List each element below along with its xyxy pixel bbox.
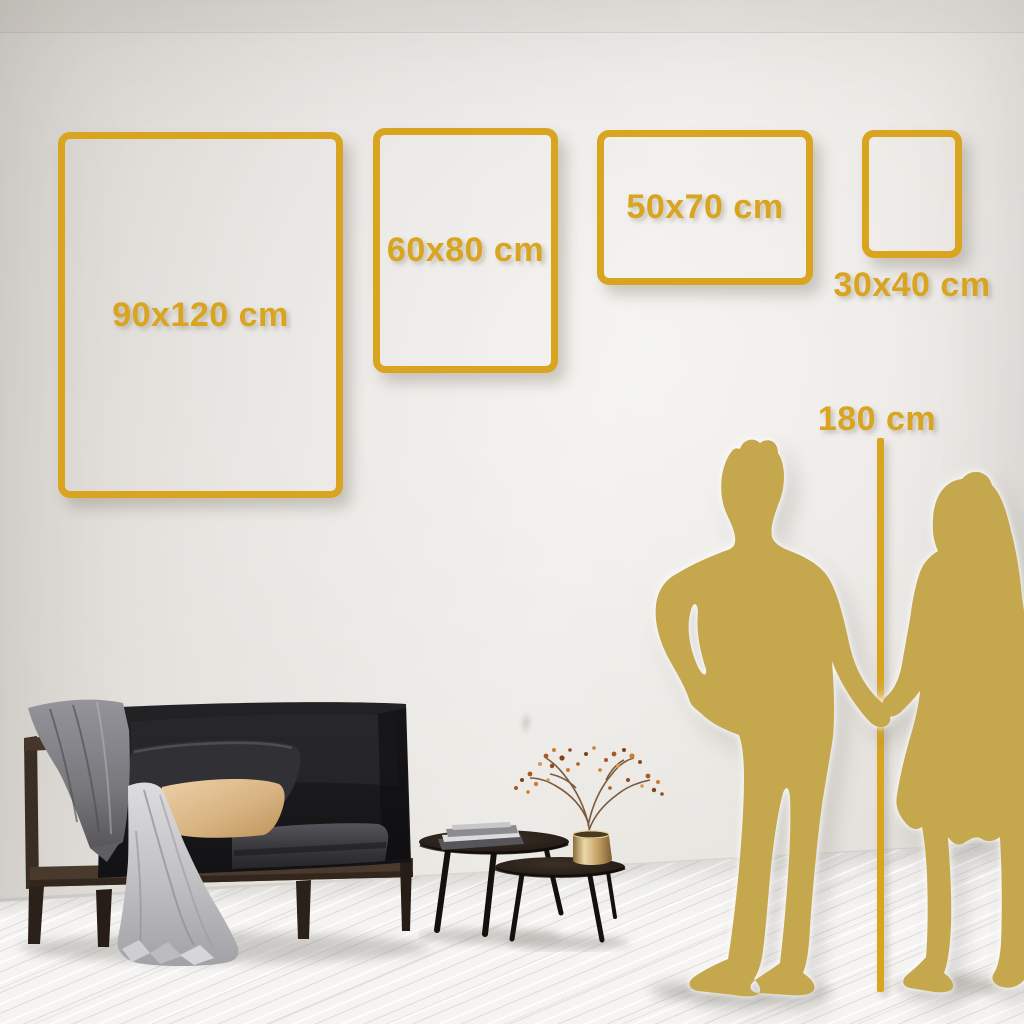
- couple-silhouettes: [640, 435, 1024, 1005]
- man-silhouette: [656, 440, 891, 997]
- frame-30x40: [862, 130, 962, 258]
- frame-30x40-label-row: 30x40 cm: [812, 266, 1012, 305]
- frame-30x40-label: 30x40 cm: [833, 266, 990, 304]
- frame-90x120-label: 90x120 cm: [112, 296, 289, 335]
- frame-90x120: 90x120 cm: [58, 132, 343, 498]
- sofa-illustration: [10, 690, 440, 980]
- woman-silhouette: [882, 472, 1024, 992]
- frame-50x70: 50x70 cm: [597, 130, 813, 285]
- size-guide-scene: 90x120 cm 60x80 cm 50x70 cm 30x40 cm 180…: [0, 0, 1024, 1024]
- couple-silhouettes-illustration: [640, 435, 1024, 1005]
- height-measure-label: 180 cm: [818, 400, 936, 438]
- sofa: [10, 690, 440, 980]
- frame-50x70-label: 50x70 cm: [626, 188, 783, 227]
- dried-branch: [530, 758, 650, 834]
- height-measure-label-row: 180 cm: [777, 400, 977, 439]
- ceiling-line: [0, 0, 1024, 33]
- frame-60x80: 60x80 cm: [373, 128, 558, 373]
- frame-60x80-label: 60x80 cm: [387, 231, 544, 270]
